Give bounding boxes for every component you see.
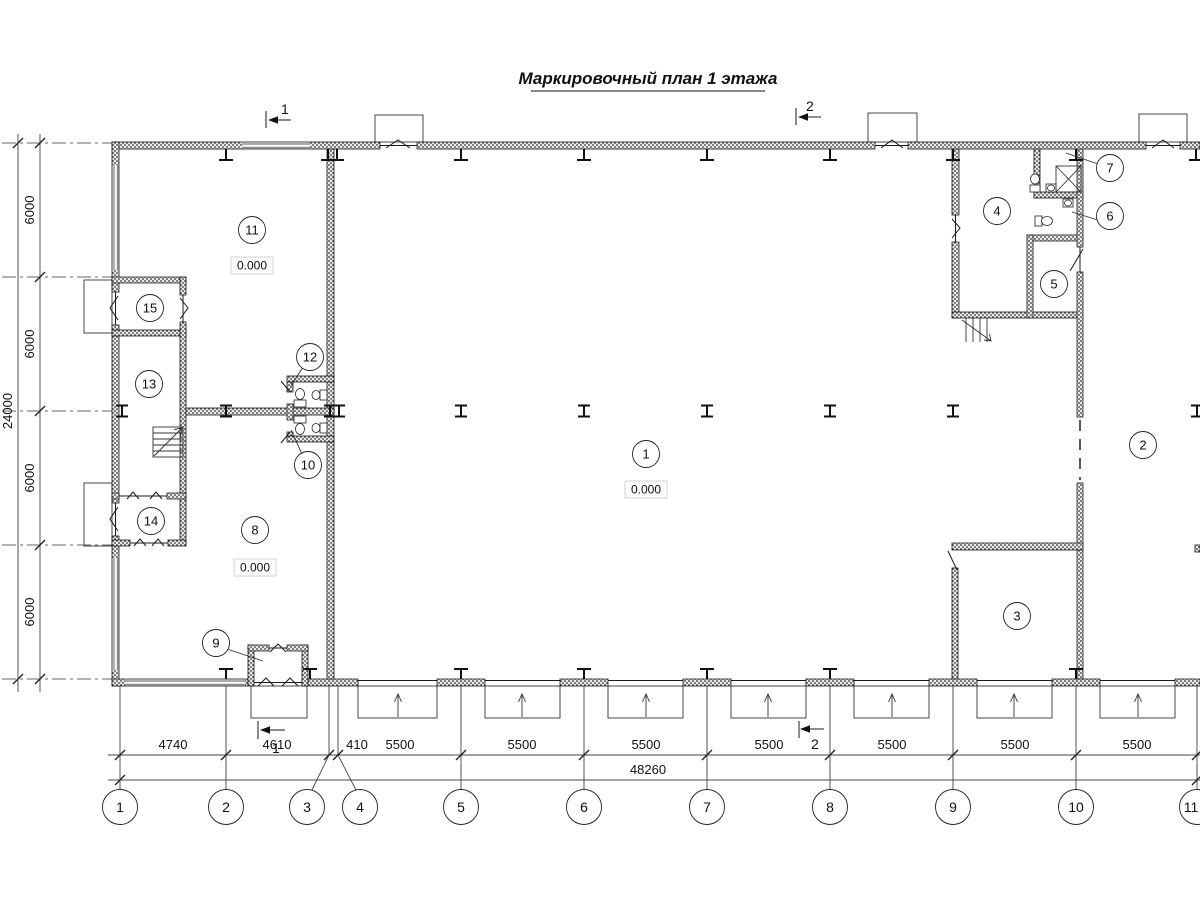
grid-bubble-label: 7 xyxy=(703,799,711,815)
stair-exterior xyxy=(962,318,991,342)
section-label: 1 xyxy=(272,740,280,756)
left-dimensions: 6000 6000 6000 6000 24000 xyxy=(0,134,112,692)
room-number: 5 xyxy=(1050,277,1057,292)
dim-segment-label: 4740 xyxy=(159,737,188,752)
dim-segment-label: 6000 xyxy=(22,330,37,359)
room-number: 8 xyxy=(251,523,258,538)
room-number: 2 xyxy=(1139,438,1146,453)
section-label: 1 xyxy=(281,101,289,117)
level-label: 0.000 xyxy=(240,561,270,575)
dim-segment-label: 6000 xyxy=(22,598,37,627)
level-label: 0.000 xyxy=(237,259,267,273)
toilet-icon xyxy=(294,389,306,408)
dim-segment-label: 6000 xyxy=(22,464,37,493)
dim-segment-label: 5500 xyxy=(1123,737,1152,752)
room-number: 13 xyxy=(142,377,156,392)
room-number: 7 xyxy=(1106,161,1113,176)
toilet-icon xyxy=(294,416,306,435)
room-number: 10 xyxy=(301,458,315,473)
grid-bubble-label: 2 xyxy=(222,799,230,815)
section-marker-top-1: 1 xyxy=(266,101,291,128)
room-number: 15 xyxy=(143,301,157,316)
section-label: 2 xyxy=(811,736,819,752)
dim-segment-label: 5500 xyxy=(755,737,784,752)
dim-total-label: 24000 xyxy=(0,393,15,429)
room-number: 6 xyxy=(1106,209,1113,224)
level-label: 0.000 xyxy=(631,483,661,497)
grid-bubble-label: 3 xyxy=(303,799,311,815)
grid-bubble-label: 1 xyxy=(116,799,124,815)
bottom-dimensions: 4740 4610 410 5500 5500 5500 5500 5500 5… xyxy=(108,686,1200,790)
floor-plan-drawing: Маркировочный план 1 этажа 6000 6000 600… xyxy=(0,0,1200,900)
grid-bubble-label: 5 xyxy=(457,799,465,815)
entry-arrows xyxy=(395,694,1142,717)
dim-segment-label: 5500 xyxy=(1001,737,1030,752)
grid-bubble-label: 8 xyxy=(826,799,834,815)
floor-plan-page: Маркировочный план 1 этажа 6000 6000 600… xyxy=(0,0,1200,900)
dim-total-label: 48260 xyxy=(630,762,666,777)
plan-title: Маркировочный план 1 этажа xyxy=(519,69,778,88)
room-number: 1 xyxy=(642,447,649,462)
dim-segment-label: 5500 xyxy=(508,737,537,752)
section-label: 2 xyxy=(806,98,814,114)
room-number: 14 xyxy=(144,514,158,529)
grid-bubble-label: 11 xyxy=(1184,799,1199,815)
sink-icon xyxy=(1046,184,1056,192)
grid-bubble-label: 10 xyxy=(1068,799,1084,815)
dim-segment-label: 410 xyxy=(346,737,368,752)
room-number: 3 xyxy=(1013,609,1020,624)
room-number: 4 xyxy=(993,204,1000,219)
room-number: 9 xyxy=(212,636,219,651)
stairs xyxy=(153,318,991,457)
room-number: 12 xyxy=(303,350,317,365)
dim-segment-label: 5500 xyxy=(878,737,907,752)
dim-segment-label: 5500 xyxy=(386,737,415,752)
toilet-icon xyxy=(1035,216,1053,226)
section-marker-top-2: 2 xyxy=(796,98,821,125)
title-block: Маркировочный план 1 этажа xyxy=(519,69,778,91)
stair-room13 xyxy=(153,427,183,457)
grid-axis-bubbles: 1 2 3 4 5 6 7 8 9 10 11 xyxy=(103,790,1200,825)
section-marker-bottom-2: 2 xyxy=(799,721,824,752)
grid-bubble-label: 6 xyxy=(580,799,588,815)
sink-icon xyxy=(312,390,327,400)
grid-bubble-label: 4 xyxy=(356,799,364,815)
dim-segment-label: 6000 xyxy=(22,196,37,225)
room-number: 11 xyxy=(245,223,259,238)
sanitary-fixtures xyxy=(294,166,1081,435)
sink-icon xyxy=(312,423,327,433)
grid-bubble-label: 9 xyxy=(949,799,957,815)
section-markers: 1 2 1 2 xyxy=(258,98,824,756)
dim-segment-label: 5500 xyxy=(632,737,661,752)
sink-icon xyxy=(1063,199,1073,207)
